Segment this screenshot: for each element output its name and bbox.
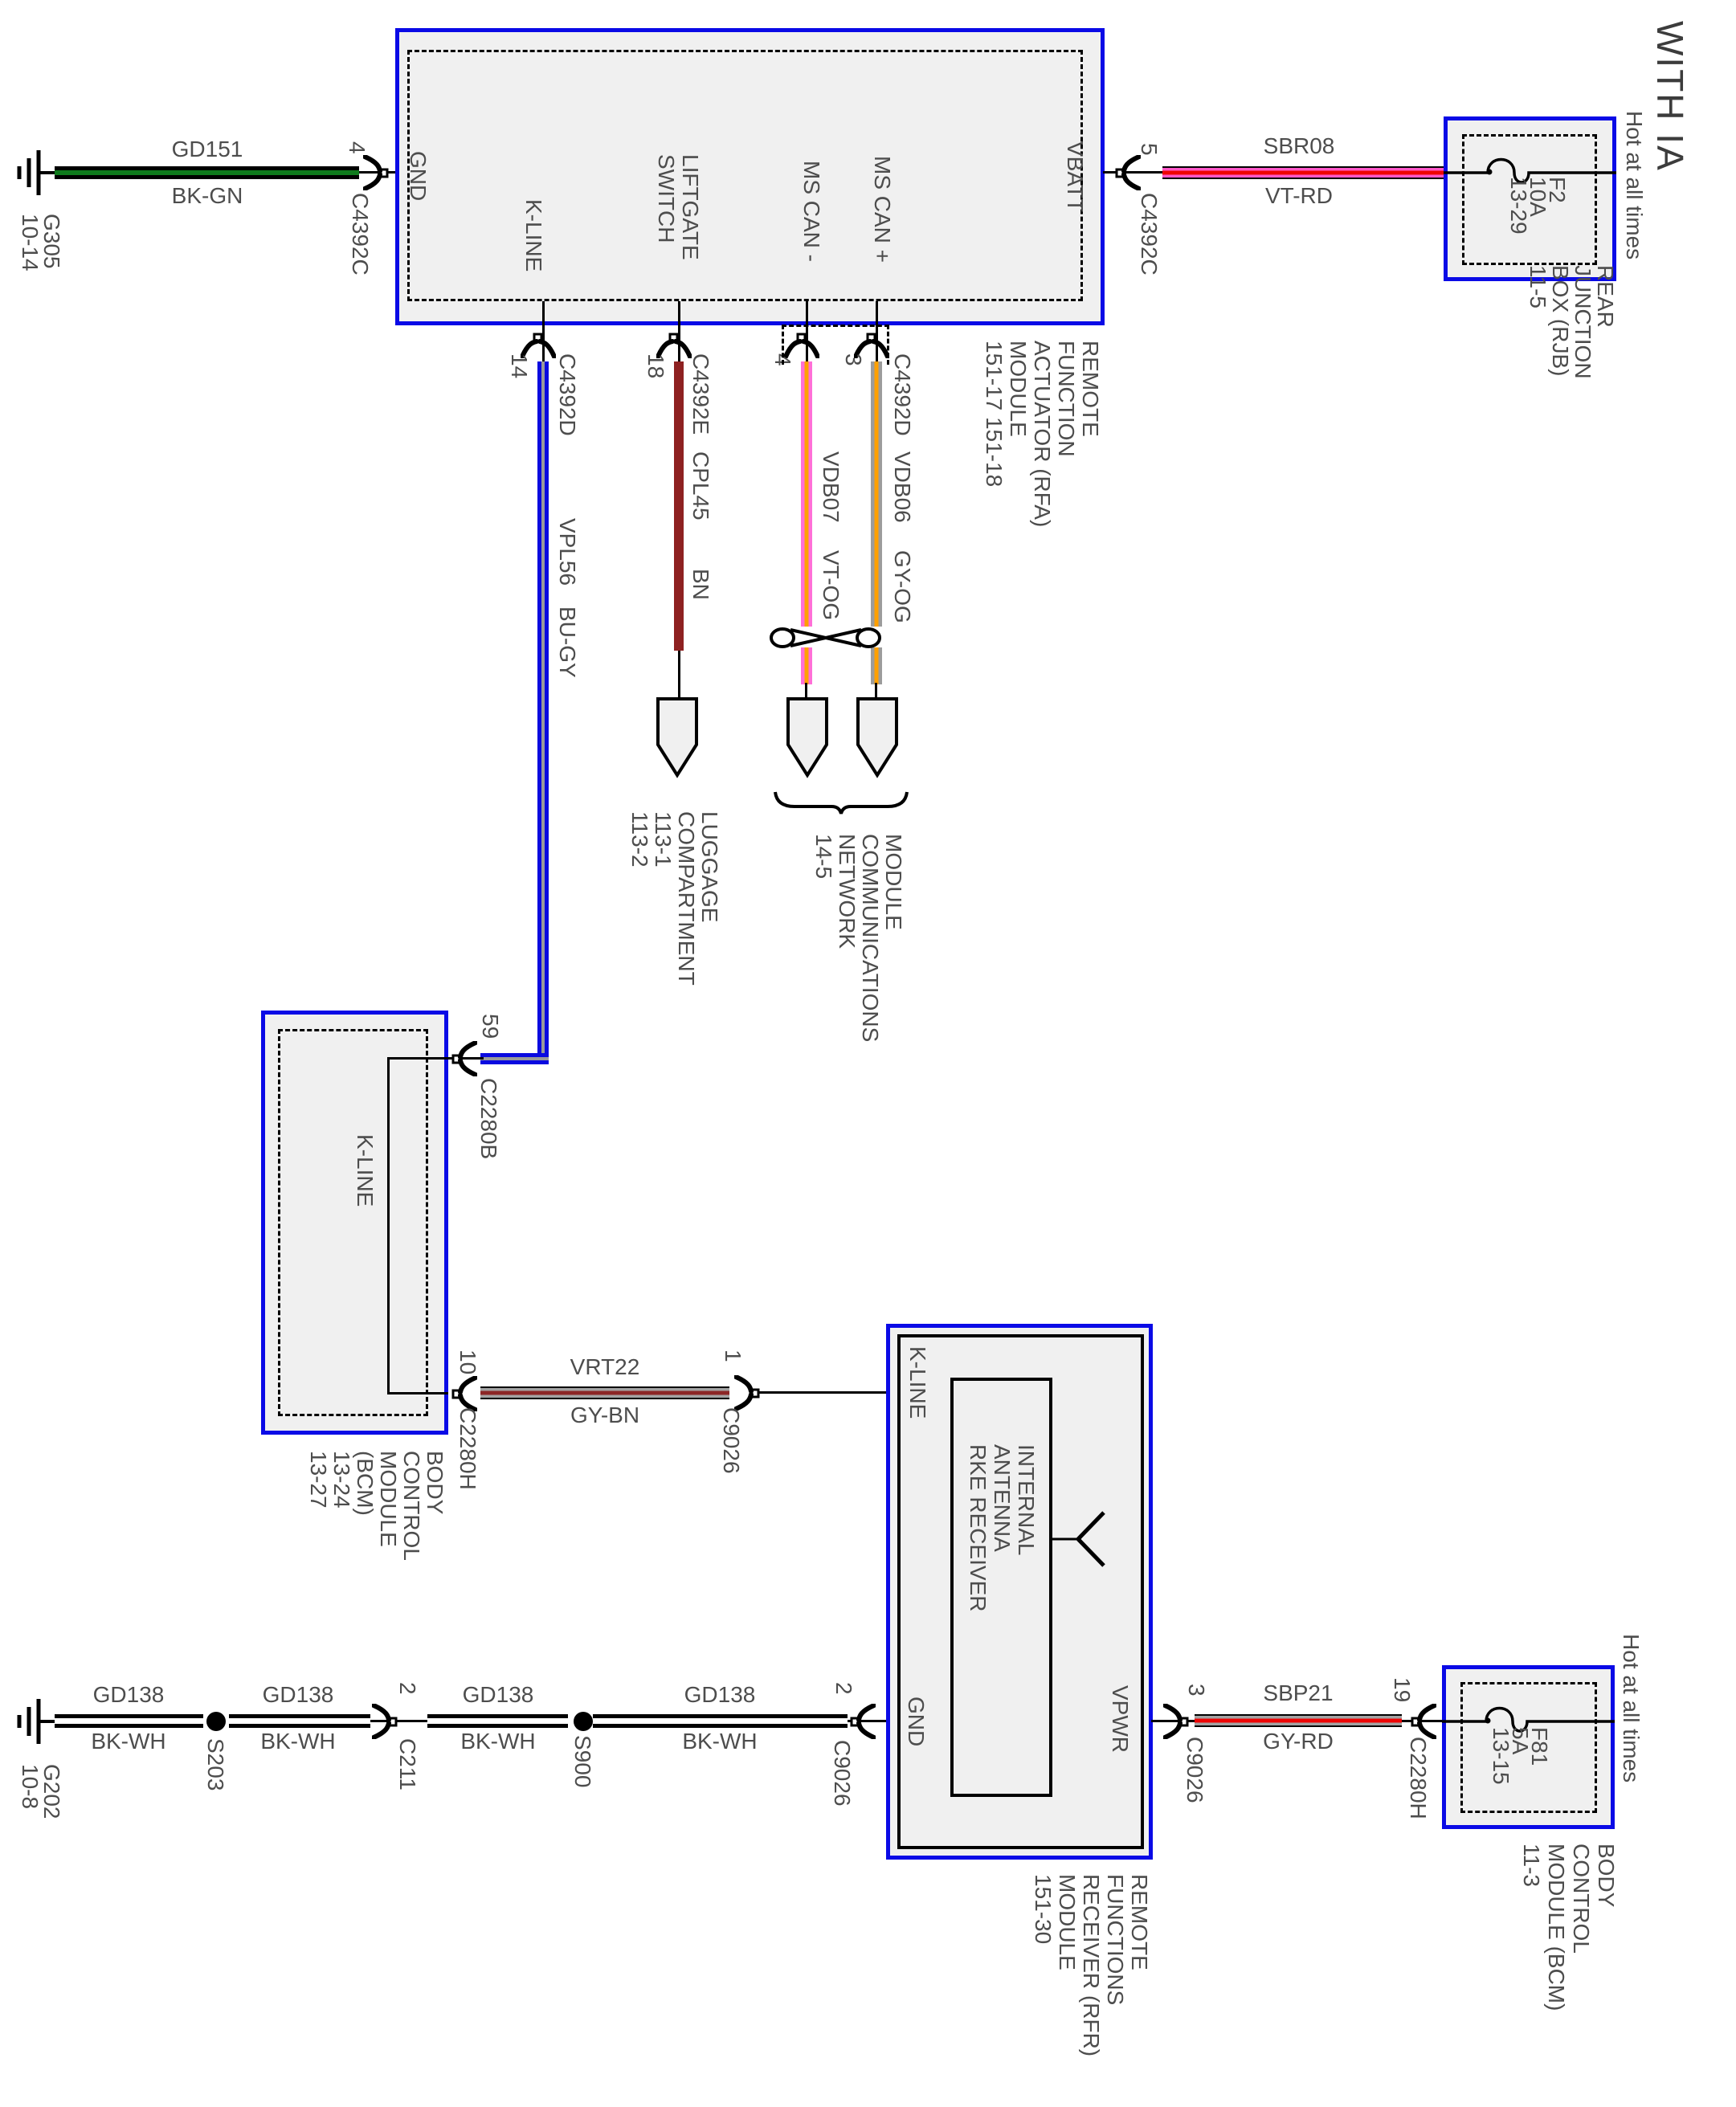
wire-cpl45-color: BN: [688, 569, 713, 600]
rfa-pin-vbatt: VBATT: [1062, 141, 1088, 212]
wire-vdb06-color: GY-OG: [889, 550, 915, 623]
wire-sbp21: [1195, 1714, 1402, 1727]
wire-sbp21-name: SBP21: [1238, 1680, 1358, 1706]
wire-gd151: [55, 166, 359, 179]
bcm-kline-path-bottom: [387, 1392, 448, 1394]
conn-id: C4392C: [1136, 193, 1162, 276]
luggage-compartment-label: LUGGAGE COMPARTMENT 113-1 113-2: [628, 811, 721, 986]
wire-vrt22-color: GY-BN: [545, 1403, 665, 1428]
conn-id: C4392C: [347, 193, 373, 276]
inline-connector-icon: [656, 696, 699, 778]
ground-icon: [11, 145, 59, 201]
wire-gd138-seg2: [229, 1714, 370, 1728]
wire-gd138-seg4: [593, 1714, 848, 1728]
bcm-label: BODY CONTROL MODULE (BCM) 13-24 13-27: [307, 1451, 447, 1561]
ground-id-line: 10-14: [19, 214, 41, 272]
brace-icon: [774, 789, 909, 816]
rfa-pin-mscan-minus: MS CAN -: [799, 161, 824, 262]
connector-arrow-icon: [451, 1041, 477, 1076]
c211-id: C211: [394, 1738, 420, 1791]
connector-arrow-icon: [363, 155, 389, 190]
rfr-in-conn: C9026: [718, 1407, 744, 1474]
drop-mscan-plus-conn: C4392D: [889, 353, 915, 436]
wire-vdb07-color: VT-OG: [818, 550, 843, 620]
rfr-vpwr-conn: C9026: [1182, 1737, 1207, 1803]
rfa-module-dashed-outline: [407, 50, 1083, 301]
c2280h-id: C2280H: [1405, 1737, 1431, 1819]
ground-id-line: G305: [41, 214, 63, 272]
connector-arrow-icon: [850, 1704, 876, 1739]
bcm-kline-label: K-LINE: [352, 1134, 378, 1207]
wire-vdb06-name: VDB06: [889, 451, 915, 523]
wire-gd138-seg1: [55, 1714, 203, 1728]
drop-kline-pin: 14: [506, 353, 532, 378]
hot-at-all-times-bottom: Hot at all times: [1618, 1634, 1644, 1782]
wire-gd138-name: GD138: [238, 1682, 358, 1708]
rfr-gnd-conn: C9026: [829, 1740, 855, 1807]
bcm-out-conn: C2280H: [455, 1407, 480, 1490]
inline-connector-icon: [856, 696, 899, 778]
wire-sbr08: [1162, 166, 1444, 179]
rfr-vpwr-pin: 3: [1183, 1684, 1209, 1697]
drop-liftgate-conn: C4392E: [688, 353, 713, 435]
shared-connector-bracket: [782, 325, 889, 365]
wire-vdb07-name: VDB07: [818, 451, 843, 523]
rfa-pin-mscan-plus: MS CAN +: [869, 156, 895, 263]
wire-gd138-color: BK-WH: [68, 1729, 189, 1754]
wire-vdb06-upper: [871, 361, 882, 627]
c2280h-pin: 19: [1389, 1677, 1415, 1702]
wire-gd138-name: GD138: [660, 1682, 780, 1708]
wire-gd138-name: GD138: [438, 1682, 558, 1708]
connector-arrow-icon: [1163, 1704, 1189, 1739]
bcm-out-pin: 10: [455, 1350, 480, 1374]
bcm-kline-path-vert: [387, 1057, 390, 1394]
connector-arrow-icon: [734, 1375, 760, 1411]
drop-liftgate-pin: 18: [643, 353, 668, 378]
rfa-pin-gnd: GND: [405, 151, 431, 201]
wire-vpl56-name: VPL56: [554, 518, 580, 586]
splice-dot-icon: [206, 1712, 226, 1731]
wire-cpl45: [674, 361, 684, 651]
connector-arrow-icon: [451, 1376, 477, 1411]
bcm-kline-path-top: [387, 1057, 448, 1060]
rfa-pin-kline: K-LINE: [521, 199, 546, 272]
ground-icon: [11, 1693, 59, 1750]
splice-dot-icon: [574, 1712, 593, 1731]
rfr-pin-kline: K-LINE: [905, 1346, 930, 1419]
conn-pin: 5: [1136, 143, 1162, 156]
antenna-icon: [1051, 1506, 1109, 1572]
drop-kline-conn: C4392D: [554, 353, 580, 436]
ground-id-g305: G305 10-14: [19, 214, 63, 272]
wire-vpl56-vertical: [537, 361, 549, 1064]
wire-gd138-seg3: [427, 1714, 568, 1728]
wire-gd138-color: BK-WH: [438, 1729, 558, 1754]
splice-s203-label: S203: [202, 1738, 228, 1791]
bcm-in-pin: 59: [477, 1014, 503, 1039]
wire-gd151-color: BK-GN: [147, 183, 268, 209]
rfr-kline-lead: [754, 1391, 886, 1394]
twisted-pair-icon: [765, 620, 885, 655]
rfr-pin-vpwr: VPWR: [1107, 1685, 1133, 1753]
rfa-pin-liftgate: LIFTGATE SWITCH: [654, 154, 702, 260]
hot-at-all-times-top: Hot at all times: [1621, 111, 1647, 259]
rfr-label: REMOTE FUNCTIONS RECEIVER (RFR) MODULE 1…: [1031, 1874, 1151, 2056]
ground-id-g202: G202 10-8: [19, 1764, 63, 1819]
conn-pin: 4: [344, 141, 370, 154]
wire-gd138-color: BK-WH: [660, 1729, 780, 1754]
wire-vpl56-corner: [480, 1053, 549, 1064]
page-title: WITH IA: [1648, 21, 1692, 172]
bcm-dashed-outline: [278, 1029, 428, 1416]
bcm-fuse-module-label: BODY CONTROL MODULE (BCM) 11-3: [1519, 1844, 1619, 2011]
rjb-label: REAR JUNCTION BOX (RJB) 11-5: [1526, 265, 1616, 379]
rfr-in-pin: 1: [720, 1350, 745, 1362]
inline-connector-icon: [786, 696, 829, 778]
wire-gd138-color: BK-WH: [238, 1729, 358, 1754]
wire-gd138-name: GD138: [68, 1682, 189, 1708]
rfa-module-label: REMOTE FUNCTION ACTUATOR (RFA) MODULE 15…: [982, 341, 1102, 527]
wire-vdb07-upper: [801, 361, 812, 627]
c211-pin: 2: [394, 1682, 420, 1695]
module-communications-network-label: MODULE COMMUNICATIONS NETWORK 14-5: [812, 834, 905, 1042]
wire-gd151-name: GD151: [147, 137, 268, 162]
connector-arrow-icon: [1411, 1704, 1436, 1739]
splice-s900-label: S900: [570, 1735, 595, 1787]
wire-cpl45-name: CPL45: [688, 451, 713, 521]
pigtail-line: [678, 651, 680, 699]
rjb-fuse-label: F2 10A 13-29: [1509, 177, 1566, 235]
wire-sbr08-color: VT-RD: [1239, 183, 1359, 209]
rfr-pin-gnd: GND: [903, 1697, 929, 1746]
wire-sbr08-name: SBR08: [1239, 133, 1359, 159]
bcm-in-conn: C2280B: [476, 1078, 501, 1159]
wire-vrt22-name: VRT22: [545, 1354, 665, 1380]
rke-receiver-label: INTERNAL ANTENNA RKE RECEIVER: [966, 1444, 1038, 1612]
bcm-fuse-label: F81 5A 13-15: [1491, 1727, 1549, 1785]
wire-vpl56-color: BU-GY: [554, 606, 580, 678]
rfr-gnd-pin: 2: [831, 1682, 856, 1695]
wire-sbp21-color: GY-RD: [1238, 1729, 1358, 1754]
connector-arrow-icon: [1115, 155, 1141, 190]
connector-arrow-icon: [372, 1704, 398, 1739]
wiring-diagram-page: G305 10-14 GD151 BK-GN 4 C4392C GND K-LI…: [0, 0, 1736, 2107]
wire-vrt22: [480, 1386, 729, 1399]
